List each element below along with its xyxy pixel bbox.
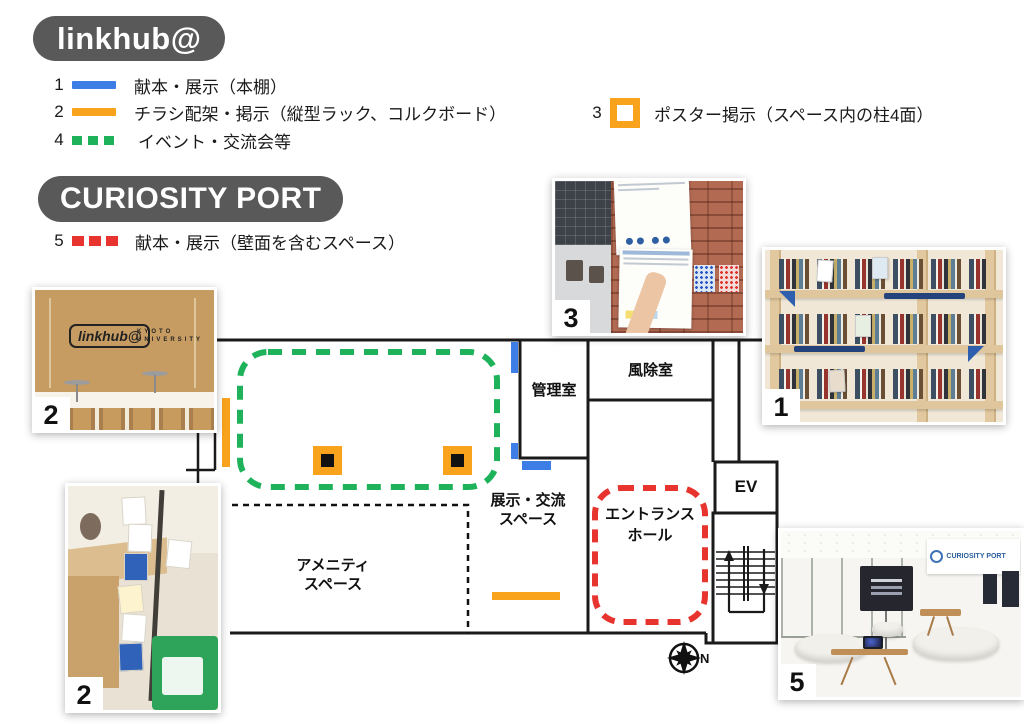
folding-table: [831, 649, 908, 656]
bookshelf-marker-2: [511, 443, 518, 459]
flyer: [124, 553, 148, 581]
bookshelf-marker-1: [511, 342, 518, 373]
photo-flyer-rack: 2: [65, 483, 221, 713]
facility-floor-map: linkhub@ 1 献本・展示（本棚） 2 チラシ配架・掲示（縦型ラック、コル…: [0, 0, 1024, 724]
side-table: [920, 609, 961, 616]
bookshelf-marker-3: [522, 461, 551, 470]
room-label-entrance: エントランス ホール: [595, 504, 705, 546]
photo-number-badge: 2: [32, 397, 70, 433]
stool: [64, 380, 90, 385]
curiosity-logo-icon: [930, 550, 943, 563]
flyer-rack-marker-left: [222, 398, 230, 467]
shelf-tag: [884, 293, 965, 299]
room-label-kanri: 管理室: [520, 381, 588, 400]
flyer: [118, 583, 145, 613]
display-book: [817, 260, 834, 283]
blue-dot-sheet: [694, 265, 715, 292]
photo-linkhub-signwall: linkhub@ KYOTO UNIVERSITY 2: [32, 287, 217, 433]
books-row: [779, 314, 986, 344]
room-label-fujo: 風除室: [588, 361, 713, 380]
wood-shelf: [68, 576, 119, 688]
photo-number-badge: 1: [762, 389, 800, 425]
compass-icon: N: [667, 641, 709, 675]
photo-number-badge: 2: [65, 677, 103, 713]
white-sofa: [913, 627, 999, 660]
photo-curiosity-port-room: CURIOSITY PORT 5: [778, 528, 1024, 700]
person-silhouette: [80, 513, 101, 540]
curiosity-port-banner: CURIOSITY PORT: [927, 539, 1019, 574]
blue-corner-label: [779, 291, 795, 307]
poster-upper: [614, 181, 692, 255]
wall-poster: [983, 574, 997, 604]
flyer: [121, 613, 147, 643]
green-flyer-box: [152, 636, 218, 710]
photo-number-badge: 3: [552, 300, 590, 336]
display-book: [872, 257, 888, 279]
flyer: [128, 524, 153, 553]
flyer-rack-marker-bottom: [492, 592, 560, 600]
books-row: [779, 369, 986, 399]
shelf-post: [985, 250, 996, 422]
kyoto-university-text: KYOTO UNIVERSITY: [137, 328, 203, 344]
shelf-tag: [794, 346, 865, 352]
display-book: [855, 315, 871, 337]
wall-poster: [1002, 571, 1019, 608]
laptop: [863, 636, 883, 649]
photo-poster-wall: 3: [552, 178, 746, 336]
white-sofa: [872, 622, 903, 637]
display-signboard: [860, 566, 913, 611]
flyer: [121, 497, 146, 526]
room-label-tenji: 展示・交流 スペース: [478, 491, 578, 529]
photo-number-badge: 5: [778, 664, 816, 700]
room-label-ev: EV: [715, 477, 777, 496]
red-dot-sheet: [719, 265, 740, 292]
room-label-amenity: アメニティ スペース: [272, 556, 394, 594]
display-book: [829, 370, 846, 393]
photo-bookshelf: 1: [762, 247, 1006, 425]
compass-north-label: N: [700, 651, 709, 666]
flyer: [119, 642, 144, 671]
shelf-board: [765, 401, 1003, 409]
blue-corner-label: [968, 346, 984, 362]
flyer: [166, 539, 193, 569]
